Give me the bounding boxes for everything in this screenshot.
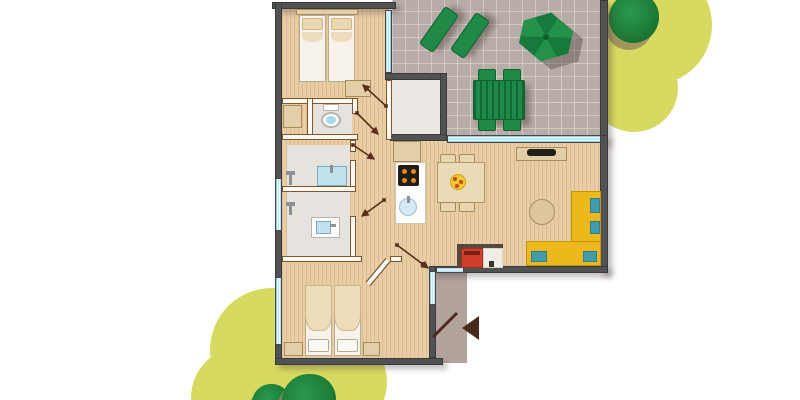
bedroom2-bench-right xyxy=(363,342,380,356)
patio-chair-4 xyxy=(503,119,521,131)
bedroom2-blanket-left xyxy=(305,285,332,331)
wall-bathroom-east-upper xyxy=(350,140,356,152)
patio-table xyxy=(473,80,525,120)
bedroom2-bench-left xyxy=(284,342,303,356)
window-bedroom2-porch xyxy=(429,271,436,305)
wall-toilet-east xyxy=(352,98,358,114)
burner-4 xyxy=(411,178,416,183)
bedroom2-pillow-left xyxy=(308,339,329,352)
bedroom1-blanket-fold-left xyxy=(302,32,323,42)
window-bedroom1-terrace xyxy=(385,10,392,73)
hall-wardrobe xyxy=(283,105,302,128)
wall-south xyxy=(275,358,443,365)
coffee-table xyxy=(529,199,555,225)
tv xyxy=(527,149,556,156)
sofa-cushion-2 xyxy=(583,251,597,262)
sofa-cushion-1 xyxy=(531,251,547,262)
bedroom2-blanket-right xyxy=(334,285,361,331)
sofa-cushion-3 xyxy=(590,198,600,213)
entrance-arrow xyxy=(462,316,479,340)
floor-plan-canvas xyxy=(0,0,800,400)
shower-room-faucet xyxy=(330,224,336,227)
wall-storage-east xyxy=(440,73,447,141)
wall-bathroom-south xyxy=(282,186,356,192)
parasol-pole xyxy=(543,34,549,40)
wall-north xyxy=(272,2,396,9)
flower-dot-2 xyxy=(459,180,462,183)
wall-living-east xyxy=(600,135,608,273)
dining-chair-4 xyxy=(459,202,475,212)
bathroom-wall-fixture-head xyxy=(286,171,295,175)
wall-bedroom2-north xyxy=(282,256,362,262)
wall-bedroom1-south xyxy=(282,98,358,104)
bathroom-faucet xyxy=(330,165,333,173)
patio-chair-3 xyxy=(478,119,496,131)
shower-room-basin-bowl xyxy=(316,221,331,234)
burner-3 xyxy=(402,178,407,183)
window-living-terrace-slider xyxy=(447,135,601,143)
wood-stove-slot xyxy=(464,251,480,255)
dining-chair-3 xyxy=(440,202,456,212)
stove-knob xyxy=(489,261,494,267)
wall-bedroom2-north-stub xyxy=(390,256,402,262)
window-bathroom-west xyxy=(275,178,282,231)
kitchen-upper-cabinet xyxy=(393,141,421,162)
kitchen-cooktop xyxy=(398,165,419,186)
toilet-bowl-water xyxy=(326,116,336,124)
storage-room-floor xyxy=(391,80,441,135)
bedroom1-blanket-fold-right xyxy=(331,32,352,42)
sofa-cushion-4 xyxy=(590,221,600,234)
bedroom1-pillow-right xyxy=(331,18,352,30)
window-bedroom2-west xyxy=(275,277,282,345)
burner-1 xyxy=(402,169,407,174)
burner-2 xyxy=(411,169,416,174)
wall-toilet-south xyxy=(282,134,358,140)
flower-dot-3 xyxy=(455,184,458,187)
wall-kitchen-north xyxy=(390,134,447,141)
toilet-cistern xyxy=(323,104,339,111)
wall-storage-west xyxy=(386,80,392,140)
bedroom1-pillow-left xyxy=(302,18,323,30)
bedroom1-dresser xyxy=(345,80,371,97)
shower-head xyxy=(286,202,295,206)
kitchen-sink-faucet xyxy=(407,196,410,203)
wall-terrace-east xyxy=(600,0,608,143)
wall-storage-north xyxy=(385,73,447,80)
flower-dot-1 xyxy=(453,177,456,180)
bedroom2-pillow-right xyxy=(337,339,358,352)
wall-shower-room-east xyxy=(350,216,356,258)
